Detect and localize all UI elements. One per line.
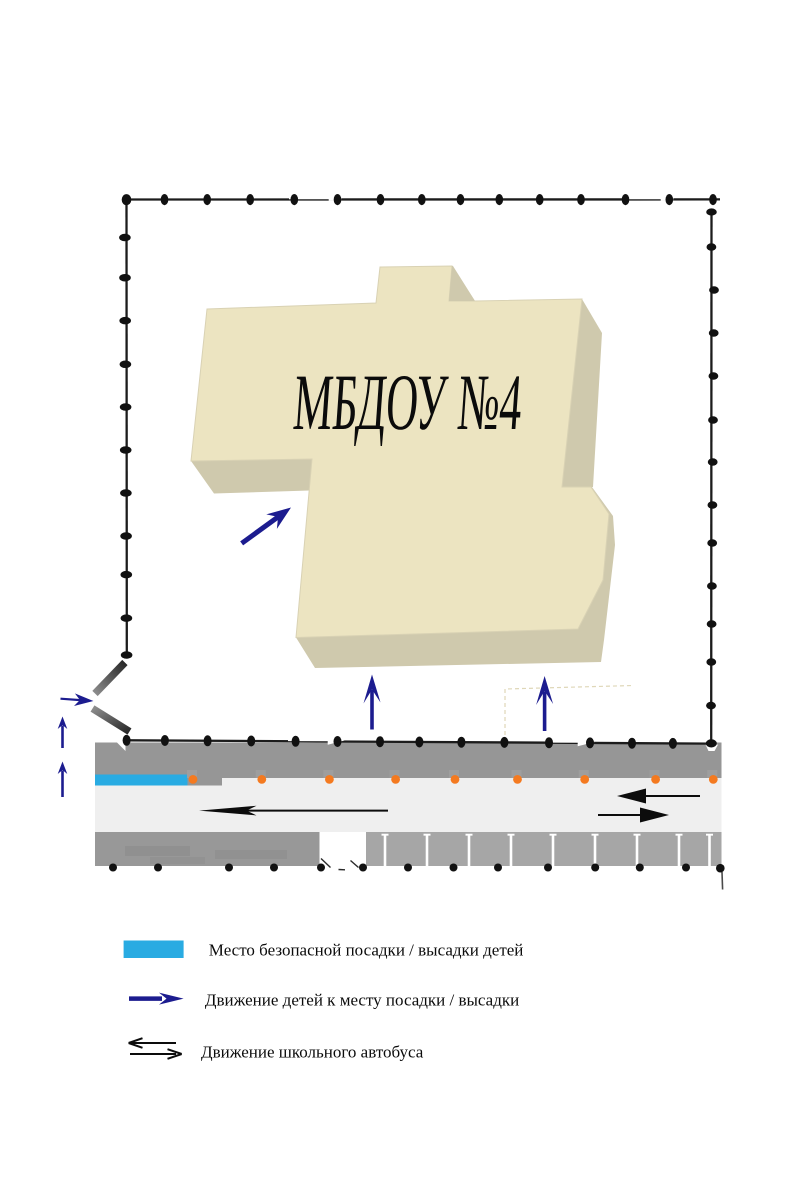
svg-text:Место безопасной посадки / выс: Место безопасной посадки / высадки детей bbox=[209, 941, 524, 960]
svg-text:МБДОУ №4: МБДОУ №4 bbox=[291, 359, 525, 447]
svg-text:Движение школьного автобуса: Движение школьного автобуса bbox=[201, 1043, 424, 1062]
svg-text:Движение детей к месту посадки: Движение детей к месту посадки / высадки bbox=[205, 991, 519, 1010]
